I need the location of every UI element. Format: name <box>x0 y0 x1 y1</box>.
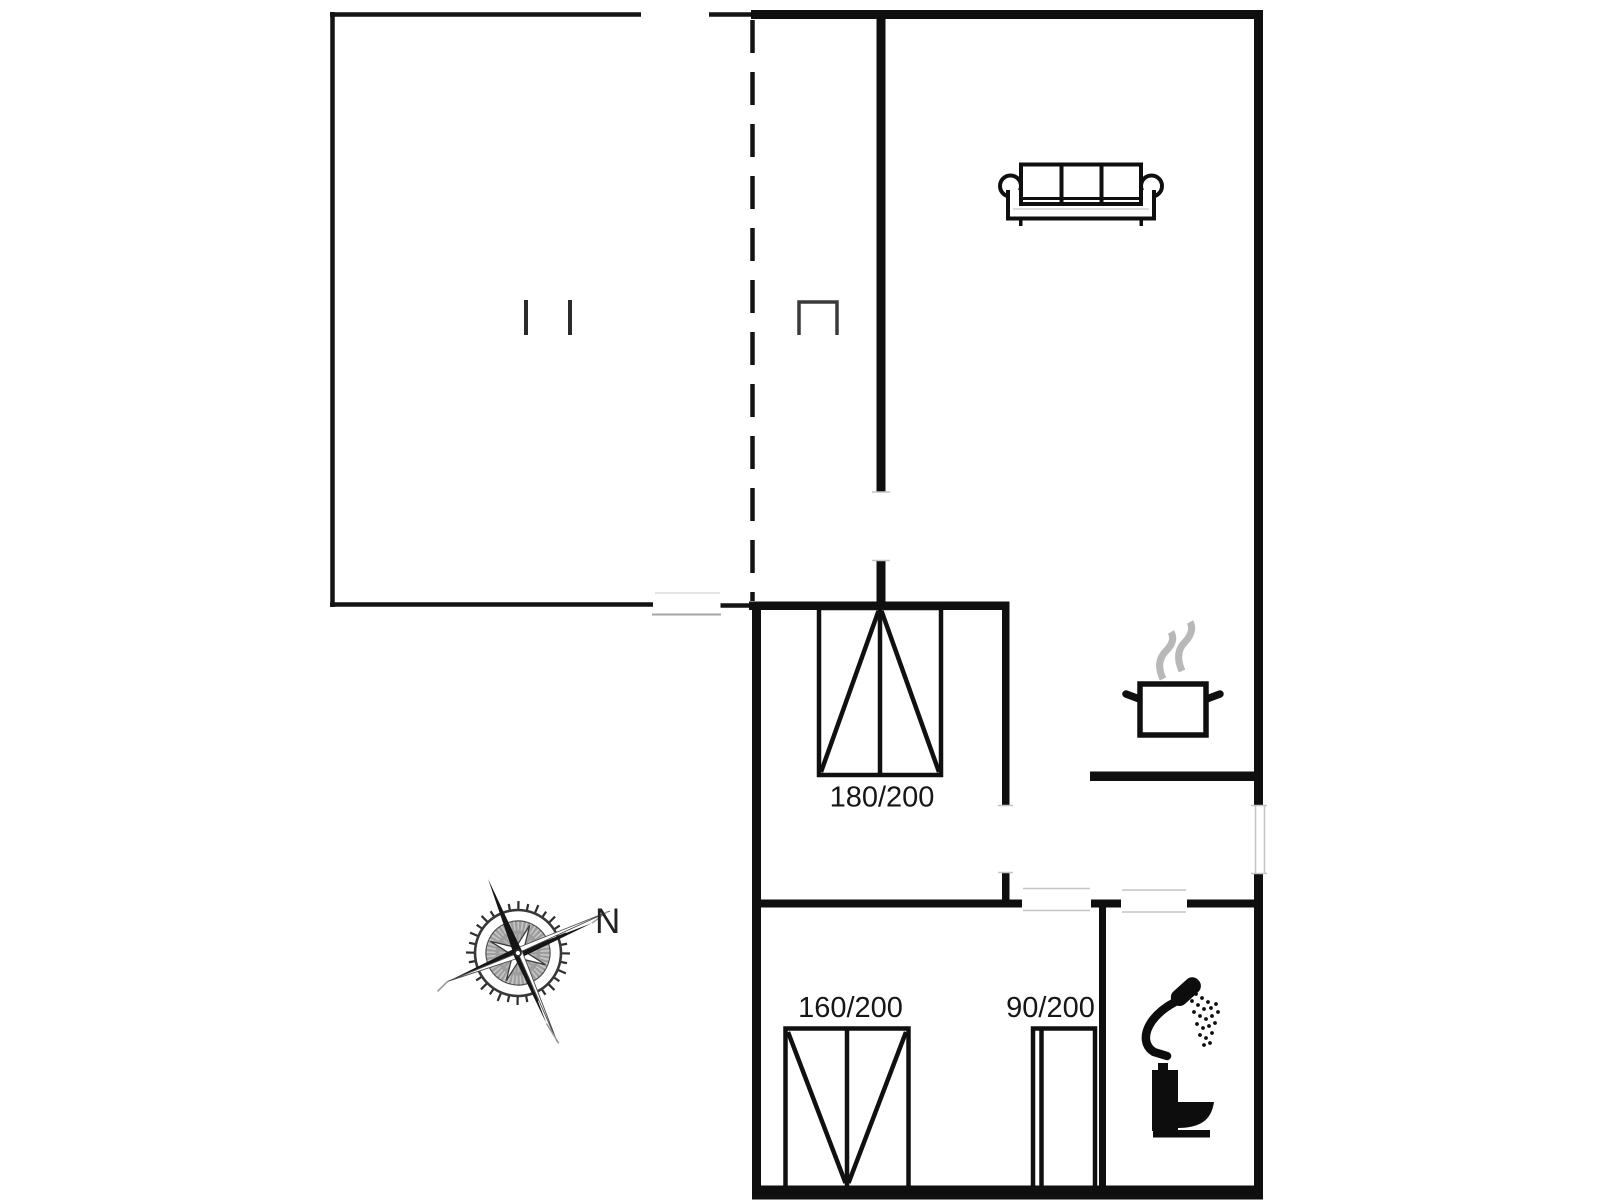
svg-text:N: N <box>595 902 620 941</box>
svg-text:180/200: 180/200 <box>830 782 935 814</box>
svg-text:160/200: 160/200 <box>798 992 903 1024</box>
svg-text:90/200: 90/200 <box>1006 992 1095 1024</box>
